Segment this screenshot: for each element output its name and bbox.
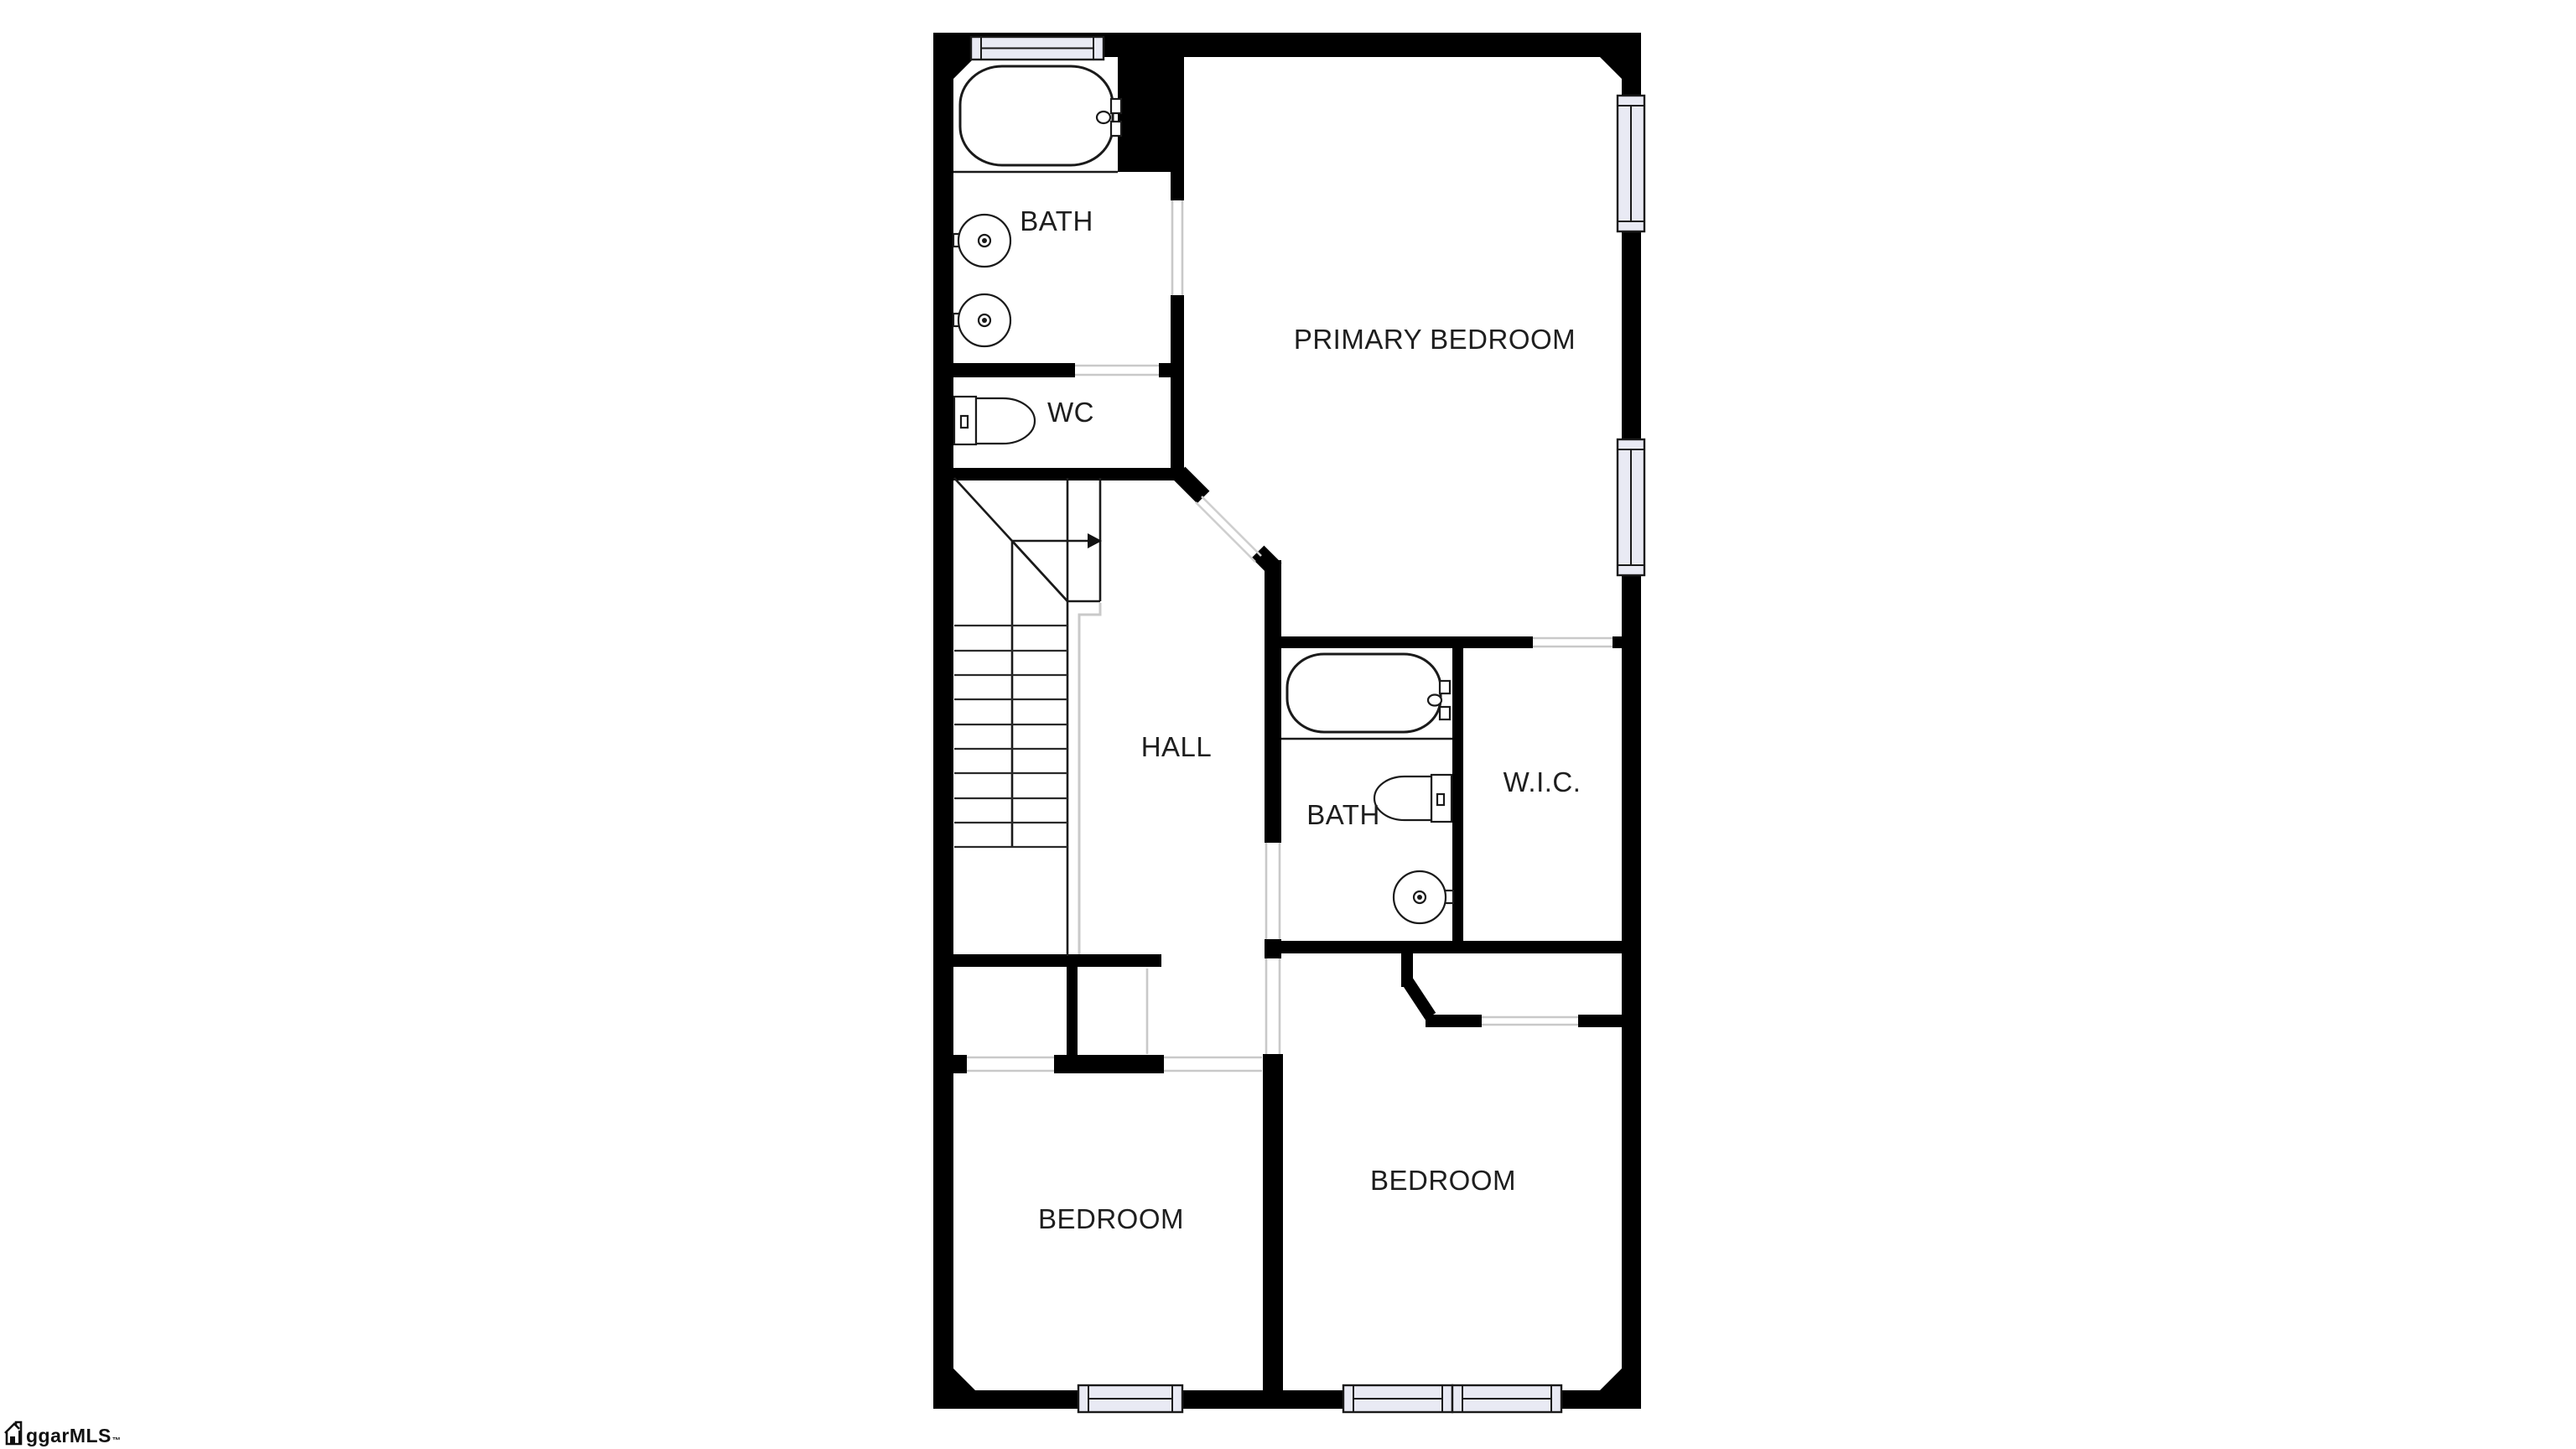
- window-bottom-right-bedroom-2: [1452, 1385, 1561, 1412]
- door-panel-primary: [1196, 502, 1255, 562]
- sink-icon: [1394, 871, 1453, 923]
- floor-plan-canvas: BATH WC PRIMARY BEDROOM HALL BATH W.I.C.…: [0, 0, 2576, 1449]
- wall-bath-wic-top: [1265, 636, 1533, 648]
- house-icon: [3, 1420, 25, 1446]
- wall-hall-bottom: [937, 954, 1161, 967]
- wall-bath-primary-lower: [1171, 295, 1184, 468]
- wall-closet-divider: [1067, 967, 1078, 1055]
- sink-icon: [953, 294, 1010, 346]
- wall-closet-right-diagonal: [1408, 982, 1431, 1016]
- wall-bath-wc: [953, 363, 1075, 377]
- wall-bedrooms-top-stub: [953, 1055, 967, 1073]
- corner-chamfer-bottom-right: [1600, 1368, 1622, 1390]
- wall-diagonal-stub-upper: [1179, 473, 1203, 497]
- room-label-bath-middle: BATH: [1306, 799, 1380, 830]
- wall-hall-bath: [1265, 560, 1281, 843]
- corner-chamfer-bottom-left: [953, 1368, 975, 1390]
- middle-bath-fixtures: [1281, 654, 1453, 923]
- room-label-primary-bedroom: PRIMARY BEDROOM: [1294, 324, 1576, 355]
- window-right-lower: [1618, 439, 1644, 575]
- staircase: [954, 478, 1102, 956]
- door-panel-primary: [1202, 496, 1261, 556]
- wall-closet-right-front-a: [1426, 1015, 1482, 1027]
- window-bottom-left-bedroom: [1078, 1385, 1182, 1412]
- upper-bath-fixtures: [953, 66, 1121, 444]
- watermark-trademark: ™: [112, 1437, 121, 1446]
- window-right-upper: [1618, 96, 1644, 231]
- bathtub-icon: [1287, 654, 1441, 732]
- outer-walls: [933, 33, 1641, 1409]
- wall-bedrooms-top: [1054, 1055, 1164, 1073]
- wall-bath-primary-upper: [1171, 172, 1184, 200]
- wall-bath-chase: [1118, 57, 1184, 172]
- wall-left: [933, 33, 953, 1409]
- wall-wc-bottom: [937, 468, 1184, 480]
- wall-bath-wic-bottom: [1265, 941, 1622, 953]
- stair-railing: [1079, 603, 1100, 954]
- wall-closet-right-front-b: [1578, 1015, 1622, 1027]
- wall-bath-wc-stub: [1159, 363, 1171, 377]
- wall-bedroom-divider: [1263, 1054, 1283, 1390]
- window-bottom-right-bedroom-1: [1343, 1385, 1452, 1412]
- wall-wic-top-right: [1613, 636, 1622, 648]
- room-label-hall: HALL: [1141, 731, 1213, 762]
- room-label-bedroom-right: BEDROOM: [1370, 1165, 1516, 1196]
- room-label-bedroom-left: BEDROOM: [1038, 1203, 1184, 1234]
- room-label-wic: W.I.C.: [1504, 766, 1581, 797]
- toilet-icon: [1374, 775, 1452, 822]
- toilet-icon: [954, 397, 1035, 444]
- room-label-wc: WC: [1047, 397, 1094, 428]
- watermark-text: ggarMLS: [26, 1426, 112, 1446]
- bathtub-icon: [960, 66, 1113, 165]
- window-top-bath: [971, 37, 1104, 60]
- room-label-bath-upper: BATH: [1020, 205, 1093, 236]
- stair-treads: [954, 626, 1067, 847]
- corner-chamfer-top-right: [1600, 57, 1622, 79]
- wall-bath-wic-divider: [1452, 636, 1463, 952]
- stair-winder-diagonal: [1012, 541, 1067, 601]
- stair-direction-arrow: [1012, 533, 1102, 548]
- wall-right: [1622, 33, 1641, 1409]
- watermark-logo: ggarMLS™: [3, 1420, 121, 1446]
- sink-icon: [953, 215, 1010, 267]
